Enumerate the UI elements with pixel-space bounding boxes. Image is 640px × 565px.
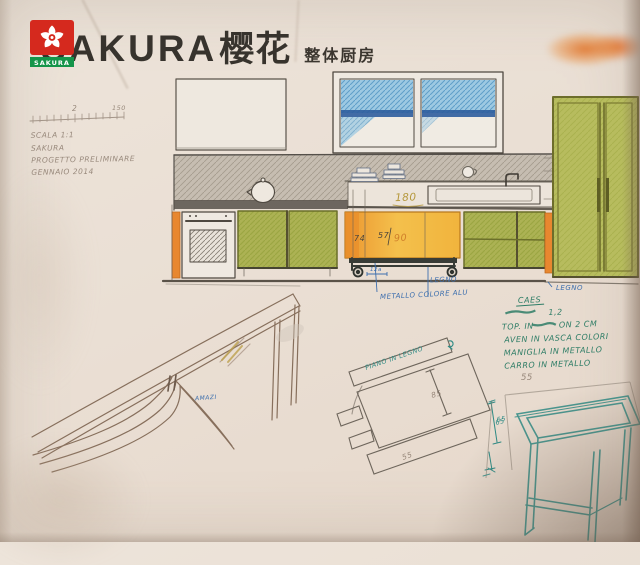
frame-sketch-pencil (486, 382, 640, 478)
brand-name-cn: 樱花 (219, 21, 291, 72)
side-note-num: 1,2 (548, 308, 563, 317)
sakura-flower-icon: SAKURA (30, 20, 74, 67)
brand-title: SAKURA 樱花 整体厨房 (41, 21, 376, 72)
pencil-note-line4: GENNAIO 2014 (31, 167, 94, 177)
eraser-smudge (273, 320, 306, 345)
dim-counter-180: 180 (395, 191, 417, 204)
detail-label-piano: PIANO IN LEGNO (364, 344, 424, 371)
oven (182, 212, 235, 278)
side-note-carro: CARRO IN METALLO (504, 359, 591, 371)
frame-sketch (483, 396, 640, 542)
side-note-maniglia: MANIGLIA IN METALLO (504, 345, 603, 357)
brand-logo-lockup: SAKURA SAKURA 樱花 整体厨房 (30, 20, 376, 72)
side-note-block: CAES 1,2 TOP. IN ON 2 CM AVEN IN VASCA C… (501, 293, 610, 371)
scanned-page: 2 150 SCALA 1:1 SAKURA PROGETTO PRELIMIN… (0, 0, 640, 542)
side-note-vasca: AVEN IN VASCA COLORI (503, 332, 609, 345)
pencil-note-line3: PROGETTO PRELIMINARE (31, 154, 135, 165)
detail-sketch (337, 338, 501, 474)
base-cabinet-doors-right (464, 212, 545, 268)
frame-dim-65: 65 (496, 414, 507, 423)
kitchen-sketch-canvas: 2 150 SCALA 1:1 SAKURA PROGETTO PRELIMIN… (0, 0, 640, 542)
badge-label: SAKURA (34, 59, 70, 67)
side-note-top-post: ON 2 CM (559, 319, 598, 329)
tall-cabinet (553, 97, 638, 277)
cart-underframe (349, 258, 457, 263)
side-note-dim-55: 55 (521, 373, 533, 383)
window (333, 72, 503, 153)
brand-tagline: 整体厨房 (304, 42, 376, 66)
dim-cart-57: 57 (378, 231, 390, 240)
note-cart-metallo: METALLO COLORE ALU (380, 288, 468, 301)
dim-cart-90: 90 (394, 233, 408, 245)
bench-sketch (32, 294, 300, 472)
bench-note: AMAZI (194, 394, 217, 403)
upper-wall-cabinet (176, 79, 286, 150)
side-note-top-pre: TOP. IN (502, 322, 534, 332)
detail-dim-55: 55 (401, 450, 414, 462)
orange-end-panel-left (172, 212, 180, 278)
oven-window (190, 230, 226, 262)
note-tall-cabinet-legno: LEGNO (556, 284, 583, 292)
pencil-note-line1: SCALA 1:1 (31, 130, 75, 140)
pencil-note-line2: SAKURA (31, 143, 65, 153)
dim-wheel-note: 12a (370, 267, 382, 273)
ruler-mid-label: 2 (72, 104, 77, 113)
side-note-caes: CAES (518, 295, 542, 305)
base-cabinet-doors-left (238, 211, 337, 276)
dim-cart-74: 74 (354, 234, 365, 243)
kitchen-elevation: 180 (163, 72, 638, 286)
scale-ruler (30, 112, 124, 123)
note-cart-legno: LEGNO (430, 275, 457, 284)
ruler-end-label: 150 (112, 104, 126, 112)
pencil-note-block: SCALA 1:1 SAKURA PROGETTO PRELIMINARE GE… (31, 129, 136, 177)
